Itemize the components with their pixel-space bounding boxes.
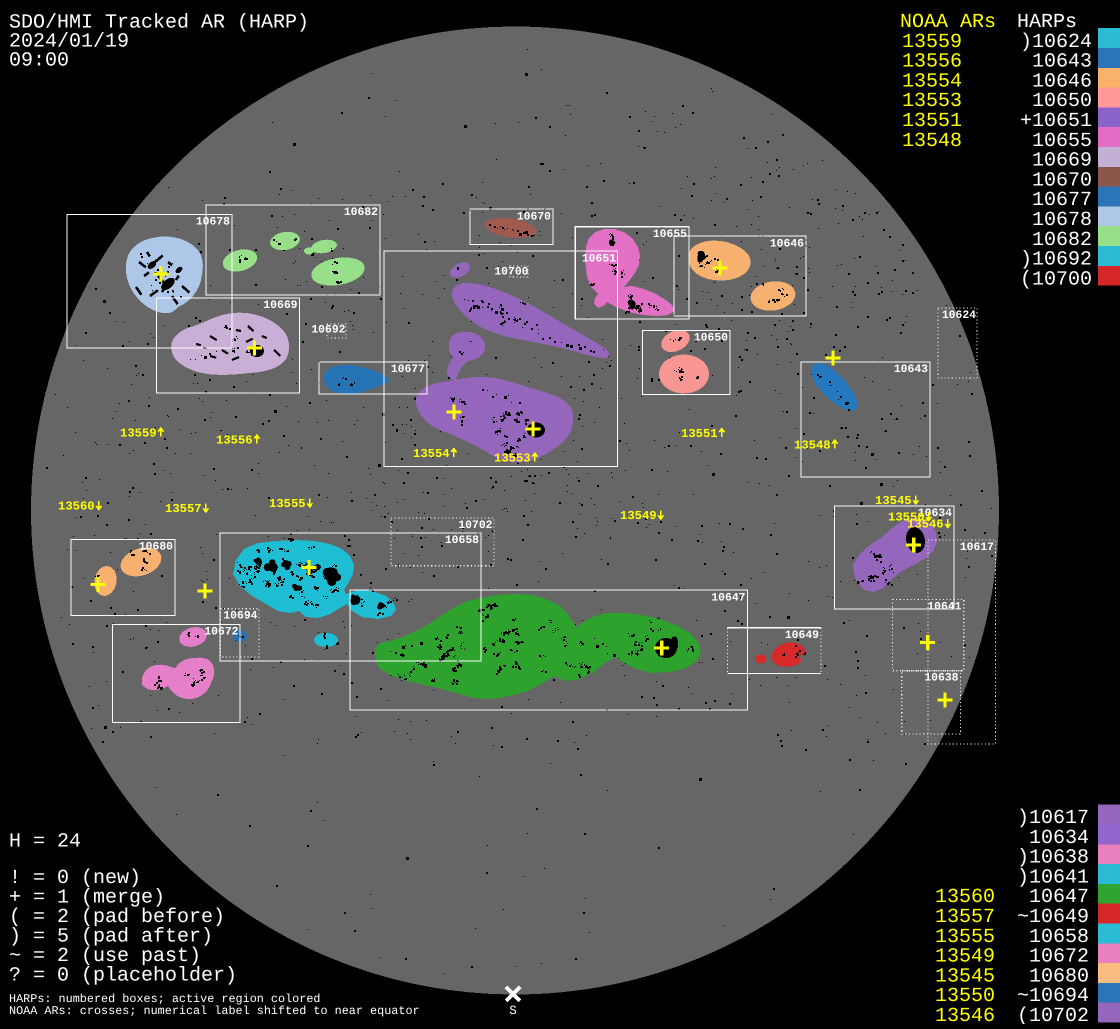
svg-text:10651: 10651 (582, 254, 616, 266)
svg-text:10669: 10669 (263, 300, 297, 312)
svg-text:10624: 10624 (942, 310, 976, 322)
svg-text:10700: 10700 (494, 267, 528, 279)
svg-text:13553: 13553 (494, 451, 531, 465)
svg-text:10692: 10692 (311, 325, 345, 337)
svg-text:10647: 10647 (711, 593, 745, 605)
svg-text:13559: 13559 (120, 426, 157, 440)
svg-text:10655: 10655 (653, 229, 687, 241)
svg-text:10672: 10672 (204, 627, 238, 639)
svg-text:13548: 13548 (794, 438, 831, 452)
svg-text:13560: 13560 (58, 499, 95, 513)
svg-text:10678: 10678 (196, 217, 230, 229)
svg-text:10702: 10702 (458, 520, 492, 532)
svg-text:(10700: (10700 (1020, 268, 1092, 291)
svg-text:H = 24: H = 24 (9, 830, 81, 853)
svg-text:S: S (509, 1004, 517, 1018)
svg-text:13551: 13551 (681, 427, 718, 441)
svg-text:13546: 13546 (907, 517, 944, 531)
svg-text:(10702: (10702 (1017, 1005, 1089, 1024)
svg-text:10677: 10677 (391, 364, 425, 376)
svg-text:13546: 13546 (935, 1005, 995, 1024)
svg-text:13556: 13556 (216, 433, 253, 447)
svg-text:13549: 13549 (620, 509, 657, 523)
svg-text:13548: 13548 (902, 130, 962, 153)
svg-text:10658: 10658 (445, 535, 479, 547)
svg-text:10670: 10670 (517, 212, 551, 224)
svg-text:10694: 10694 (223, 611, 257, 623)
svg-text:10638: 10638 (924, 673, 958, 685)
svg-text:? = 0 (placeholder): ? = 0 (placeholder) (9, 964, 237, 987)
svg-text:13555: 13555 (269, 497, 306, 511)
svg-text:10682: 10682 (344, 207, 378, 219)
svg-text:09:00: 09:00 (9, 50, 69, 73)
svg-text:10641: 10641 (927, 602, 961, 614)
svg-text:10646: 10646 (770, 239, 804, 251)
svg-text:10649: 10649 (785, 630, 819, 642)
svg-text:10643: 10643 (894, 364, 928, 376)
svg-text:13545: 13545 (875, 494, 912, 508)
svg-text:13554: 13554 (413, 447, 450, 461)
svg-text:10650: 10650 (694, 333, 728, 345)
svg-text:10680: 10680 (139, 542, 173, 554)
svg-text:NOAA ARs: crosses; numerical l: NOAA ARs: crosses; numerical label shift… (9, 1004, 420, 1018)
svg-text:13557: 13557 (165, 502, 202, 516)
svg-text:10617: 10617 (960, 542, 994, 554)
